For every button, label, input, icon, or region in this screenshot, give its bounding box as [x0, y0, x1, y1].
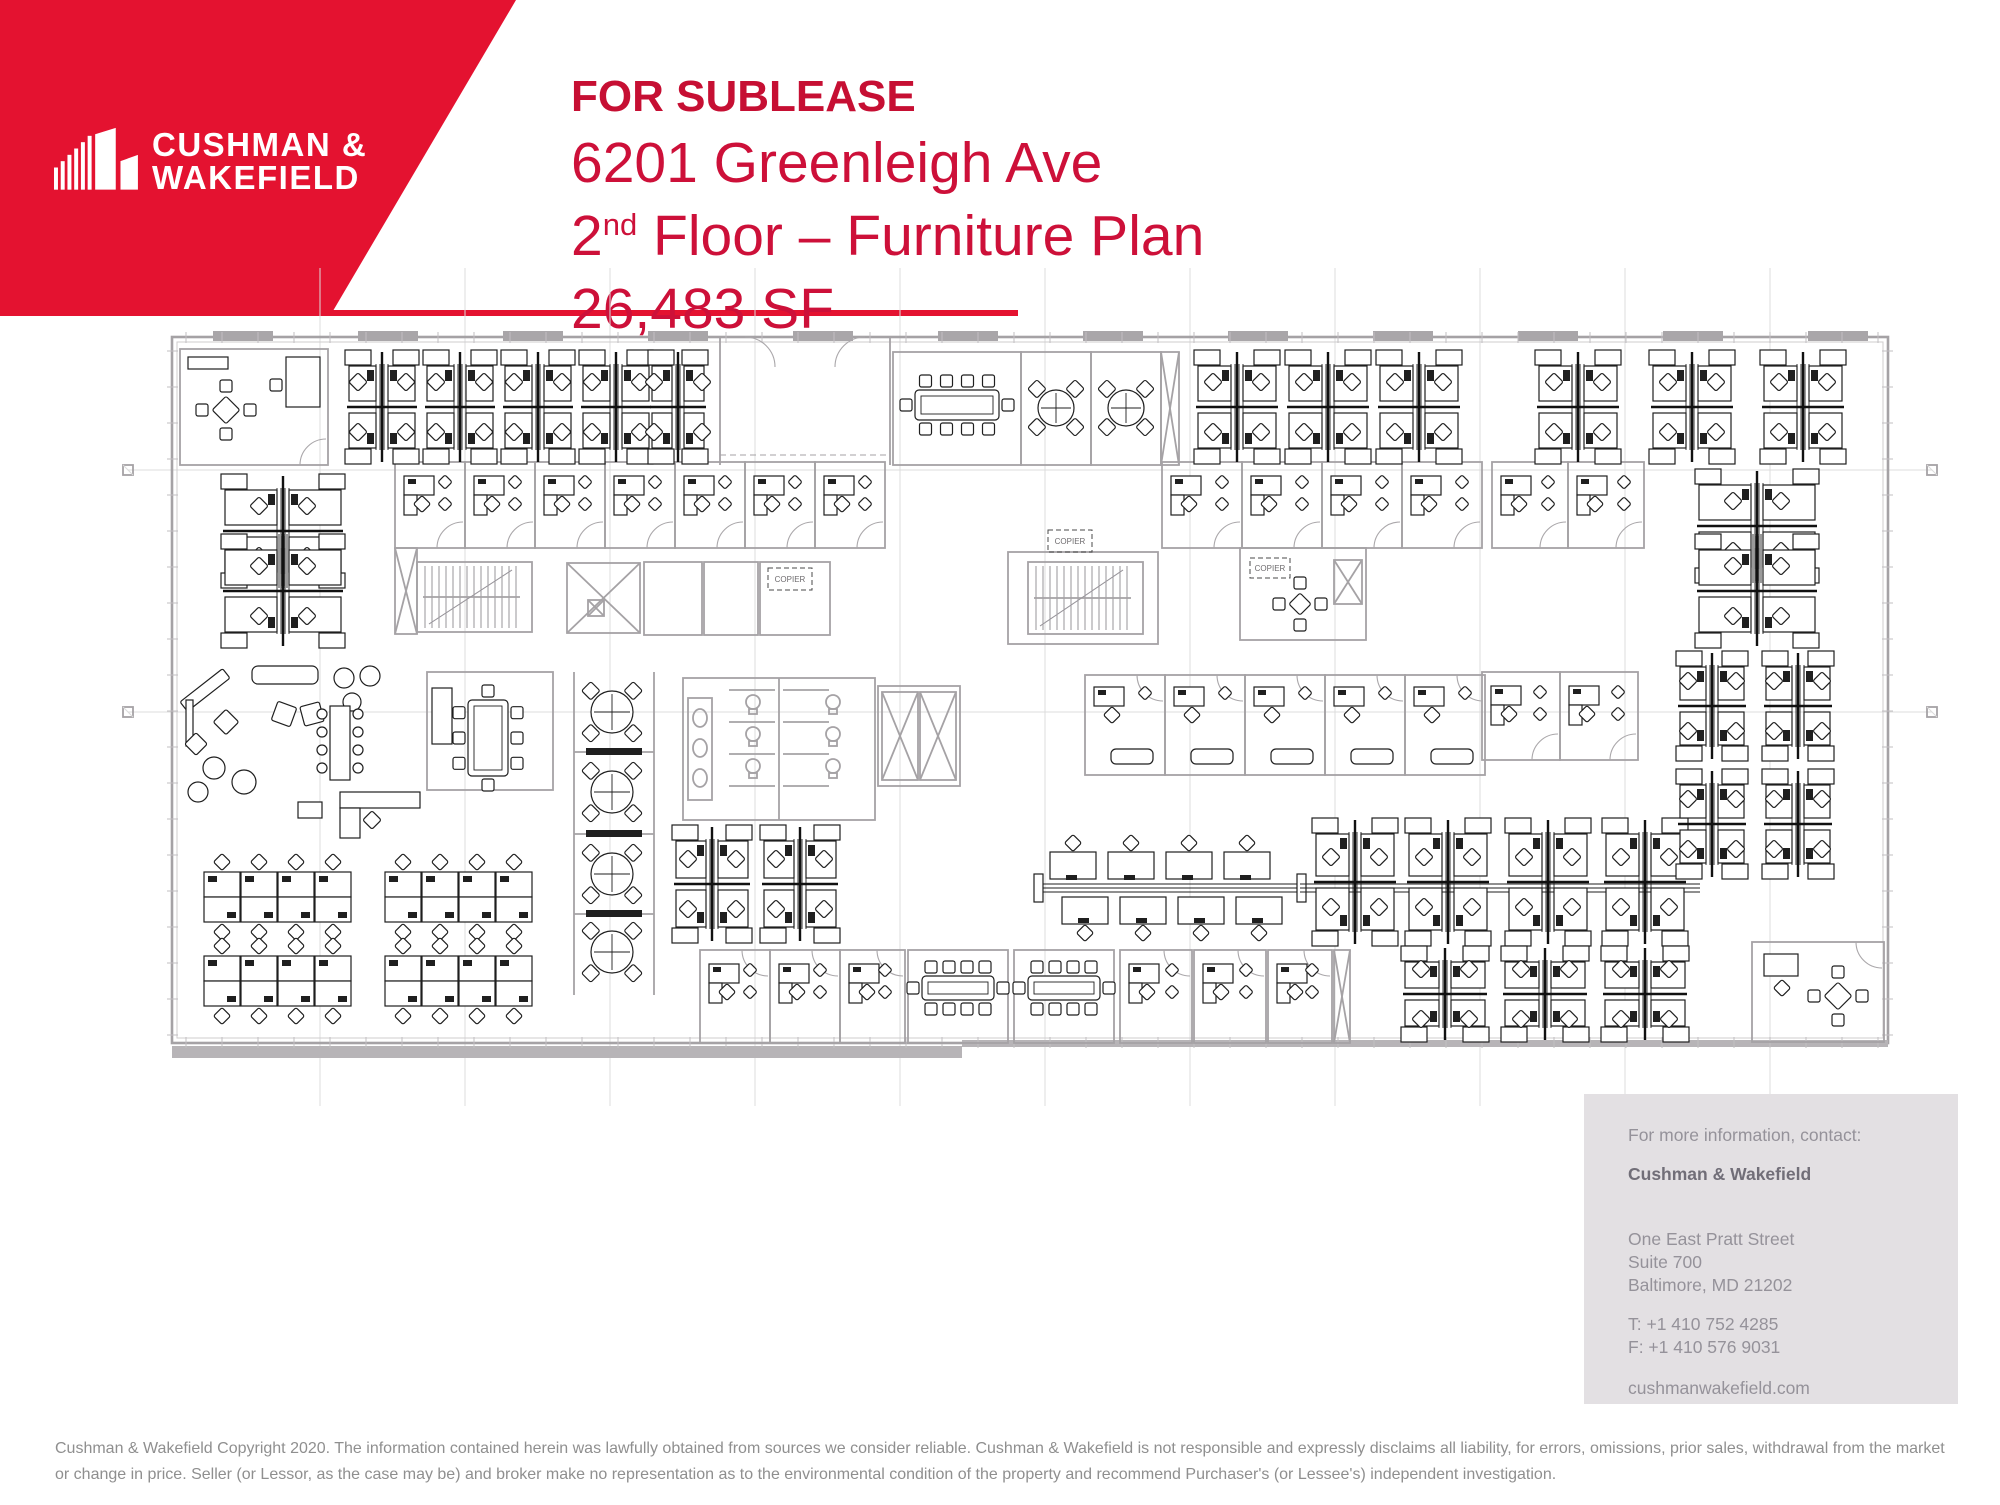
disclaimer-text: Cushman & Wakefield Copyright 2020. The … [55, 1436, 1950, 1488]
svg-text:COPIER: COPIER [1255, 564, 1286, 573]
contact-address-line2: Suite 700 [1628, 1251, 1958, 1274]
contact-intro: For more information, contact: [1628, 1124, 1958, 1147]
contact-address-line3: Baltimore, MD 21202 [1628, 1274, 1958, 1297]
contact-address-line1: One East Pratt Street [1628, 1228, 1958, 1251]
contact-fax: F: +1 410 576 9031 [1628, 1336, 1958, 1359]
contact-website[interactable]: cushmanwakefield.com [1628, 1377, 1958, 1400]
contact-phones: T: +1 410 752 4285 F: +1 410 576 9031 [1628, 1313, 1958, 1359]
svg-text:COPIER: COPIER [775, 575, 806, 584]
contact-phone: T: +1 410 752 4285 [1628, 1313, 1958, 1336]
contact-name: Cushman & Wakefield [1628, 1163, 1958, 1186]
svg-text:COPIER: COPIER [1055, 537, 1086, 546]
contact-box: For more information, contact: Cushman &… [1584, 1094, 1958, 1404]
contact-address: One East Pratt Street Suite 700 Baltimor… [1628, 1228, 1958, 1297]
